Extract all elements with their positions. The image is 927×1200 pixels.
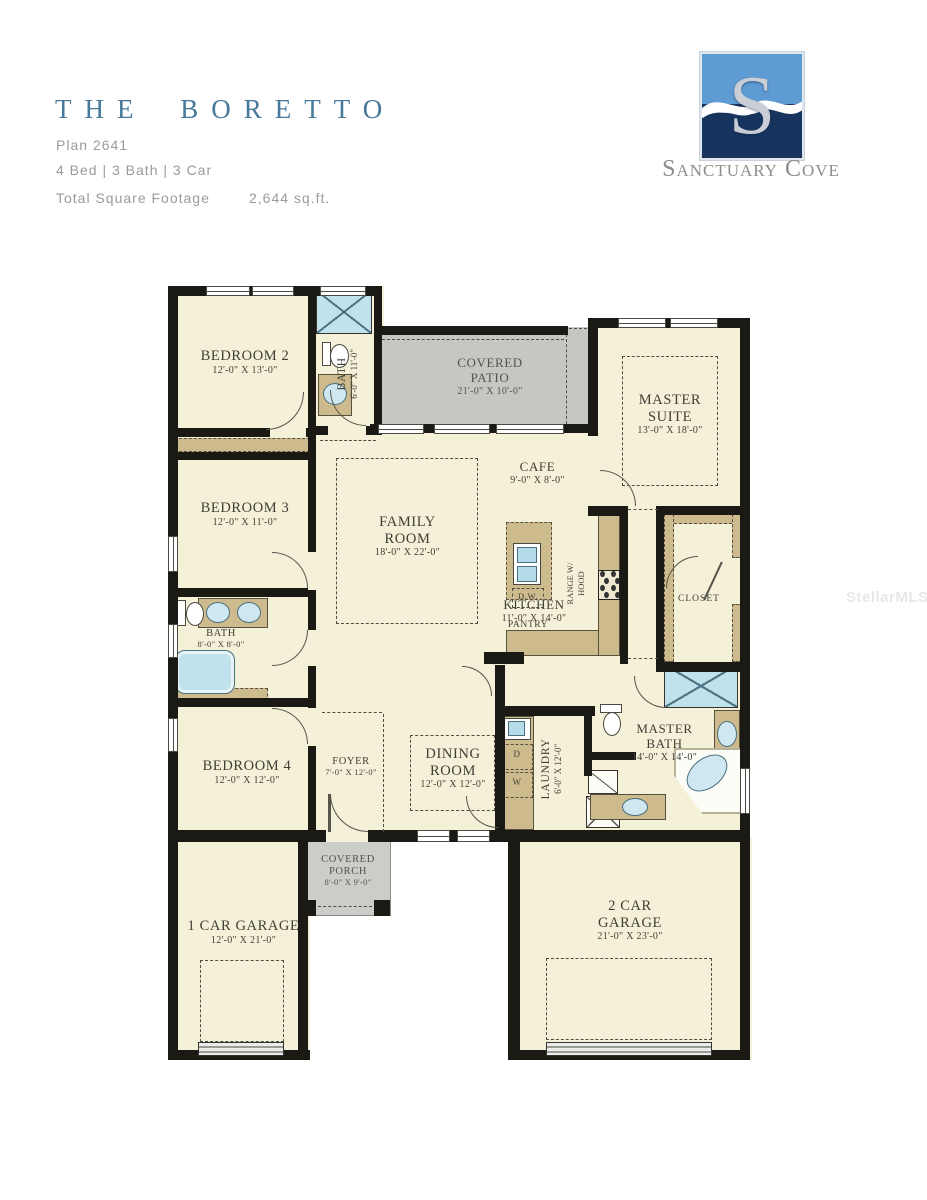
window bbox=[168, 718, 178, 752]
patio-slider bbox=[434, 424, 490, 434]
wall bbox=[584, 706, 592, 776]
wall bbox=[168, 452, 316, 460]
door-opening bbox=[308, 630, 316, 666]
wall bbox=[588, 318, 750, 328]
door-opening bbox=[308, 552, 316, 590]
room-label-dining-room: DININGROOM12'-0" X 12'-0" bbox=[408, 746, 498, 791]
garage2-door bbox=[546, 1042, 712, 1056]
room-label-closet: CLOSET bbox=[668, 594, 730, 605]
wall bbox=[298, 838, 308, 1060]
room-label-foyer: FOYER7'-0" X 12'-0" bbox=[318, 756, 384, 778]
wall bbox=[484, 652, 524, 664]
door-opening bbox=[270, 428, 306, 437]
room-label-bath2: BATH8'-0" X 8'-0" bbox=[190, 628, 252, 650]
sanctuary-cove-logo: S bbox=[700, 52, 804, 160]
room-label-covered-porch: COVEREDPORCH8'-0" X 9'-0" bbox=[312, 854, 384, 888]
garage2-car-space bbox=[546, 958, 712, 1040]
room-label-garage2: 2 CARGARAGE21'-0" X 23'-0" bbox=[570, 898, 690, 943]
bath2-tub bbox=[175, 650, 235, 694]
patio-window bbox=[496, 424, 564, 434]
porch-post bbox=[300, 900, 316, 916]
room-label-master-bath: MASTERBATH14'-0" X 14'-0" bbox=[612, 722, 717, 763]
wall bbox=[588, 506, 628, 516]
master-sink-south bbox=[622, 798, 648, 816]
window bbox=[206, 286, 250, 296]
room-label-laundry: LAUNDRY6'-0" X 12'-0" bbox=[530, 714, 574, 824]
dryer-label: D bbox=[501, 749, 533, 759]
pantry-label: PANTRY bbox=[500, 620, 556, 631]
wall bbox=[620, 506, 628, 664]
foyer-opening-dashes bbox=[322, 712, 382, 713]
room-label-garage1: 1 CAR GARAGE12'-0" X 21'-0" bbox=[176, 918, 311, 946]
room-label-family-room: FAMILYROOM18'-0" X 22'-0" bbox=[340, 514, 475, 559]
range-hood-label: RANGE W/HOOD bbox=[556, 544, 596, 624]
porch-post bbox=[374, 900, 390, 916]
wall bbox=[656, 506, 664, 672]
room-label-bedroom3: BEDROOM 312'-0" X 11'-0" bbox=[180, 500, 310, 528]
wall bbox=[374, 326, 568, 335]
corridor-opening-dashes bbox=[628, 509, 658, 510]
washer-label: W bbox=[501, 777, 533, 787]
garage1-car-space bbox=[200, 960, 284, 1042]
cased-opening bbox=[588, 436, 598, 506]
door-opening bbox=[308, 708, 316, 746]
window bbox=[168, 536, 178, 572]
room-label-bedroom2: BEDROOM 212'-0" X 13'-0" bbox=[180, 348, 310, 376]
window bbox=[618, 318, 666, 328]
room-label-covered-patio: COVEREDPATIO21'-0" X 10'-0" bbox=[400, 356, 580, 397]
window bbox=[320, 286, 366, 296]
wall bbox=[168, 588, 316, 597]
garage1-door bbox=[198, 1042, 284, 1056]
closet-shelf-left bbox=[664, 514, 674, 662]
mls-watermark: StellarMLS bbox=[846, 589, 927, 606]
door-opening bbox=[630, 662, 656, 672]
room-label-master-suite: MASTERSUITE13'-0" X 18'-0" bbox=[610, 392, 730, 437]
wall bbox=[168, 698, 316, 707]
room-label-cafe: CAFE9'-0" X 8'-0" bbox=[490, 460, 585, 486]
sqft-label: Total Square Footage bbox=[56, 190, 210, 206]
window bbox=[252, 286, 294, 296]
wall bbox=[588, 318, 598, 436]
front-door-leaf bbox=[328, 794, 331, 832]
window bbox=[670, 318, 718, 328]
bath2-sink-left bbox=[206, 602, 230, 623]
master-sink-east bbox=[717, 721, 737, 747]
island-sink-bowl2 bbox=[517, 566, 537, 582]
window bbox=[457, 830, 490, 842]
island-sink-bowl1 bbox=[517, 547, 537, 563]
wall bbox=[656, 662, 750, 672]
brand-name: Sanctuary Cove bbox=[600, 156, 902, 183]
plan-number: Plan 2641 bbox=[56, 137, 128, 153]
window bbox=[740, 768, 750, 814]
room-label-bedroom4: BEDROOM 412'-0" X 12'-0" bbox=[182, 758, 312, 786]
range-cooktop bbox=[598, 570, 620, 600]
window bbox=[168, 624, 178, 658]
laundry-sink bbox=[508, 721, 525, 736]
page-title: THE BORETTO bbox=[55, 94, 395, 125]
closet-shelf-top bbox=[664, 514, 742, 524]
logo-monogram: S bbox=[702, 56, 802, 156]
door-opening bbox=[328, 426, 366, 435]
window bbox=[417, 830, 450, 842]
hall-opening-dashes bbox=[320, 440, 376, 441]
bath2-toilet bbox=[186, 602, 204, 626]
wall bbox=[508, 838, 520, 1060]
sqft-value: 2,644 sq.ft. bbox=[249, 190, 330, 206]
bed-bath-car-specs: 4 Bed | 3 Bath | 3 Car bbox=[56, 162, 212, 178]
porch-open-edge bbox=[318, 906, 372, 907]
hall-closet-shelf bbox=[174, 438, 310, 452]
wall bbox=[374, 288, 382, 434]
patio-window bbox=[378, 424, 424, 434]
front-door-opening bbox=[326, 830, 368, 842]
patio-roof-line bbox=[382, 339, 564, 340]
linen-closet-upper bbox=[588, 770, 618, 794]
wall bbox=[656, 506, 750, 515]
wall bbox=[740, 318, 750, 1060]
room-label-bath3: BATH6'-0" X 11'-0" bbox=[326, 322, 370, 426]
corridor-opening-dashes bbox=[628, 658, 658, 659]
bath2-sink-right bbox=[237, 602, 261, 623]
floor-plan-sheet: THE BORETTO Plan 2641 4 Bed | 3 Bath | 3… bbox=[0, 0, 927, 1200]
